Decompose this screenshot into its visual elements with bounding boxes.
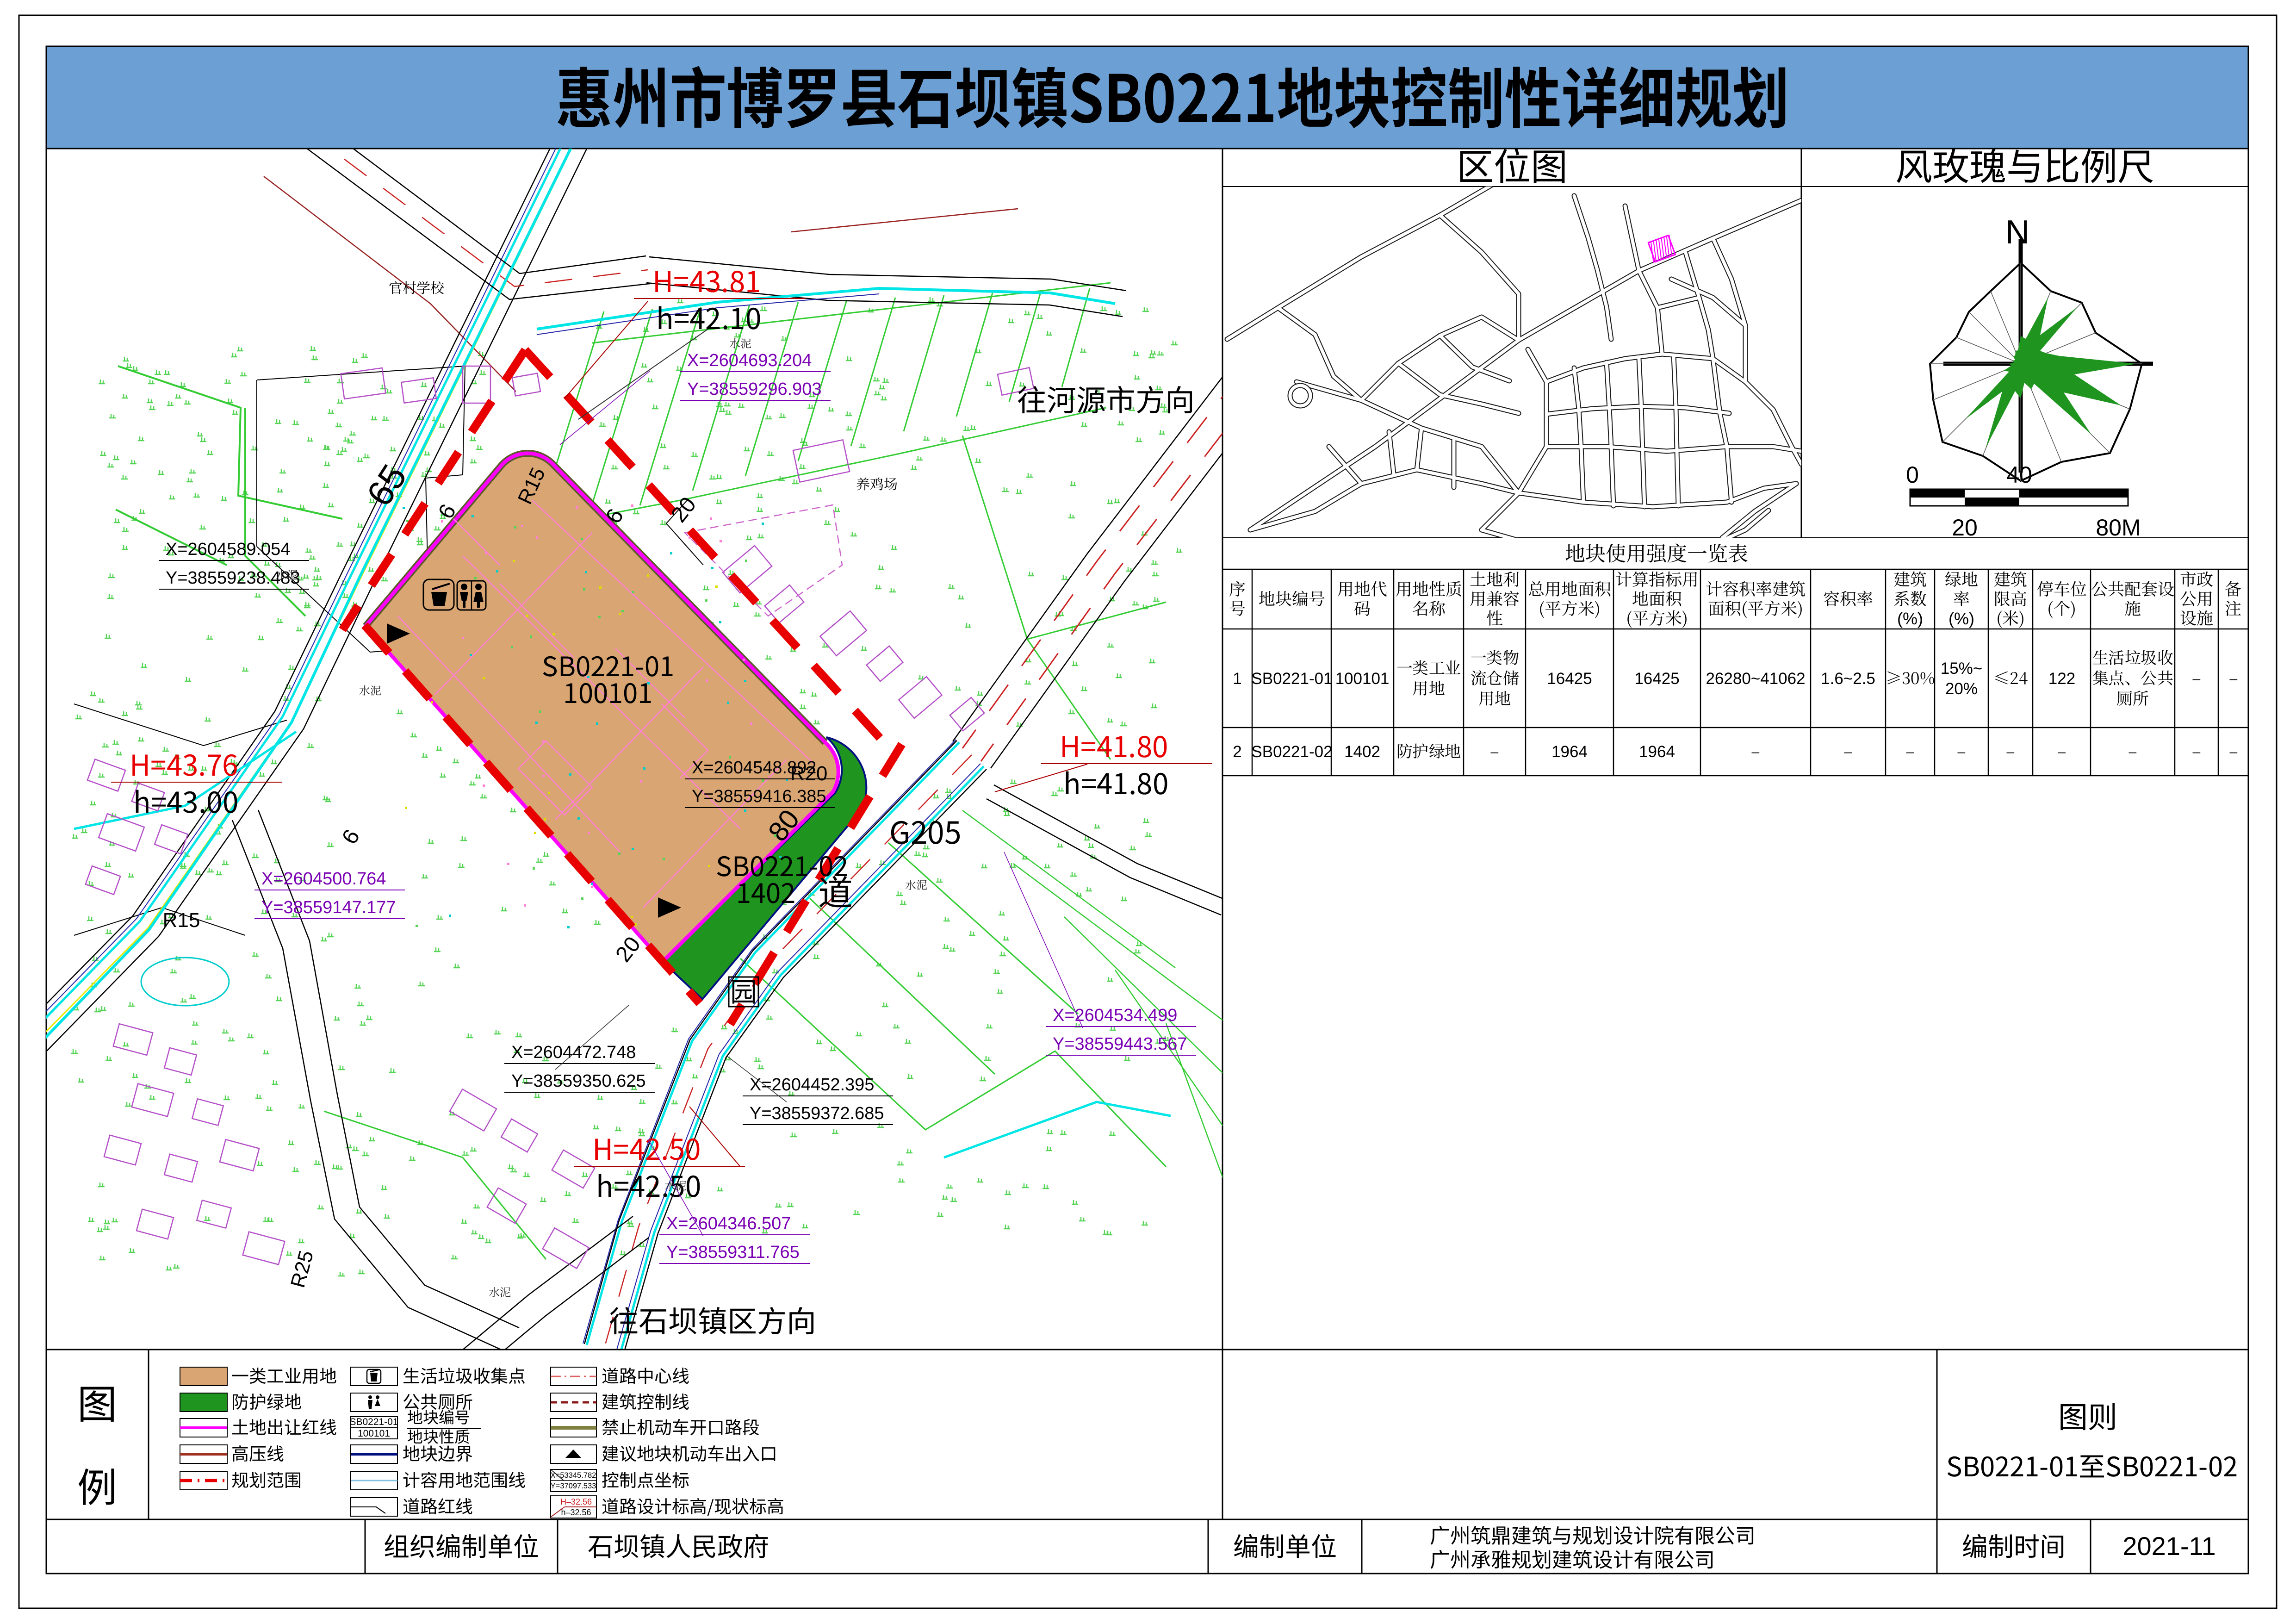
svg-text:16425: 16425 — [1634, 670, 1679, 688]
svg-text:100101: 100101 — [358, 1428, 390, 1439]
svg-text:X=2604589.054: X=2604589.054 — [166, 540, 290, 559]
svg-text:1.6~2.5: 1.6~2.5 — [1821, 670, 1875, 688]
svg-text:15%~: 15%~ — [1941, 660, 1983, 678]
svg-text:1: 1 — [1233, 670, 1241, 688]
svg-text:X=53345.782: X=53345.782 — [551, 1471, 596, 1480]
svg-text:80M: 80M — [2096, 515, 2141, 541]
svg-text:Y=38559443.567: Y=38559443.567 — [1053, 1034, 1187, 1054]
svg-text:R20: R20 — [790, 762, 828, 785]
svg-text:Y=38559350.625: Y=38559350.625 — [511, 1071, 646, 1091]
svg-text:X=2604452.395: X=2604452.395 — [750, 1075, 874, 1095]
svg-text:0: 0 — [1906, 462, 1919, 488]
svg-text:100101: 100101 — [1335, 670, 1390, 688]
svg-text:122: 122 — [2048, 670, 2075, 688]
svg-text:SB0221-02: SB0221-02 — [1251, 743, 1332, 761]
svg-text:Y=38559238.483: Y=38559238.483 — [166, 568, 300, 588]
svg-text:SB0221-01: SB0221-01 — [349, 1417, 398, 1427]
svg-text:26280~41062: 26280~41062 — [1706, 670, 1805, 688]
svg-text:16425: 16425 — [1547, 670, 1592, 688]
svg-text:h–32.56: h–32.56 — [561, 1508, 591, 1517]
svg-text:20: 20 — [1952, 515, 1978, 541]
svg-text:1964: 1964 — [1551, 743, 1588, 761]
svg-text:SB0221-01: SB0221-01 — [1251, 670, 1332, 688]
svg-text:Y=38559416.385: Y=38559416.385 — [692, 787, 826, 806]
svg-text:(%): (%) — [1948, 609, 1974, 628]
svg-text:Y=38559372.685: Y=38559372.685 — [750, 1104, 884, 1123]
svg-text:20%: 20% — [1945, 680, 1978, 698]
svg-text:40: 40 — [2006, 462, 2032, 488]
svg-text:2021-11: 2021-11 — [2122, 1531, 2215, 1561]
svg-text:X=2604693.204: X=2604693.204 — [687, 351, 812, 370]
svg-text:Y=38559311.765: Y=38559311.765 — [666, 1243, 800, 1262]
svg-text:X=2604534.499: X=2604534.499 — [1053, 1006, 1177, 1025]
svg-text:X=2604346.507: X=2604346.507 — [666, 1214, 791, 1233]
svg-text:Y=38559296.903: Y=38559296.903 — [687, 380, 822, 399]
svg-text:H–32.56: H–32.56 — [560, 1497, 592, 1506]
svg-text:X=2604472.748: X=2604472.748 — [511, 1043, 636, 1062]
svg-text:X=2604500.764: X=2604500.764 — [261, 869, 386, 889]
svg-text:Y=38559147.177: Y=38559147.177 — [261, 898, 396, 917]
svg-text:2: 2 — [1233, 743, 1241, 761]
svg-text:(%): (%) — [1897, 609, 1923, 628]
svg-text:R15: R15 — [163, 909, 200, 932]
svg-text:1402: 1402 — [1344, 743, 1380, 761]
svg-text:1964: 1964 — [1639, 743, 1675, 761]
svg-text:N: N — [2005, 214, 2029, 251]
svg-text:Y=37097.533: Y=37097.533 — [551, 1482, 596, 1490]
